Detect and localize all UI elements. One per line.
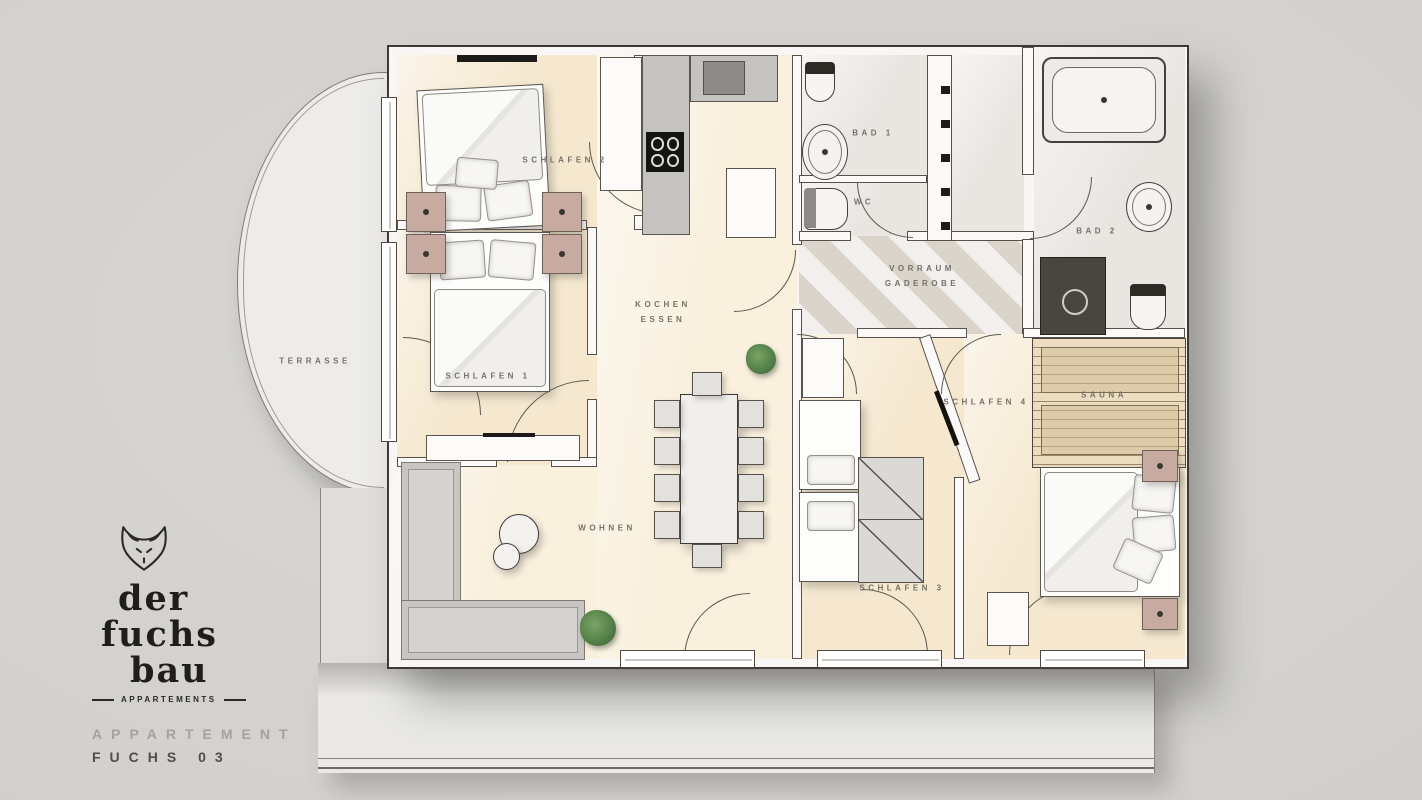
sauna-bench xyxy=(1041,405,1179,455)
dining-chair xyxy=(692,544,722,568)
kitchen-tall-unit xyxy=(726,168,776,238)
logo-tagline: APPARTEMENTS xyxy=(92,695,322,704)
tagline-dash-left xyxy=(92,699,114,701)
washing-machine xyxy=(1040,257,1106,335)
label-schlafen4: SCHLAFEN 4 xyxy=(943,395,1028,410)
dining-chair xyxy=(654,474,680,502)
coffee-table-small xyxy=(493,543,520,570)
nightstand xyxy=(1142,598,1178,630)
floorplan-scene: TERRASSE SCHLAFEN 2 SCHLAFEN 1 KOCHEN ES… xyxy=(0,0,1422,800)
tagline-dash-right xyxy=(224,699,246,701)
radiator xyxy=(941,60,950,238)
sauna-cabin xyxy=(1032,338,1186,468)
sauna-bench xyxy=(1041,347,1179,393)
label-bad1: BAD 1 xyxy=(852,126,894,141)
kitchen-island xyxy=(600,57,642,191)
dining-chair xyxy=(738,400,764,428)
label-schlafen2: SCHLAFEN 2 xyxy=(522,153,607,168)
brand-logo: der fuchs bau APPARTEMENTS APPARTEMENT F… xyxy=(92,524,322,765)
sofa-horizontal xyxy=(401,600,585,660)
apartment-name: FUCHS 03 xyxy=(92,749,322,765)
window-schlafen4 xyxy=(1040,650,1145,668)
label-wohnen: WOHNEN xyxy=(578,521,635,536)
wall-shaft xyxy=(927,55,952,241)
label-wc: WC xyxy=(854,195,874,210)
label-terrasse: TERRASSE xyxy=(279,354,351,369)
dining-chair xyxy=(654,511,680,539)
wall-bad2-left-upper xyxy=(1022,47,1034,175)
window-schlafen3 xyxy=(817,650,942,668)
wall-schlafen1-right-upper xyxy=(587,227,597,355)
apartment-outline xyxy=(387,45,1189,669)
wall-schlafen34-divider xyxy=(954,477,964,659)
nightstand xyxy=(542,234,582,274)
terrace-railing xyxy=(243,78,384,488)
desk-panel xyxy=(858,457,924,521)
cooktop xyxy=(646,132,684,172)
logo-word-bau: bau xyxy=(130,653,322,689)
nightstand xyxy=(1142,450,1178,482)
label-schlafen1: SCHLAFEN 1 xyxy=(445,369,530,384)
wall-vorraum-top-left xyxy=(799,231,851,241)
label-vorraum: VORRAUM GADEROBE xyxy=(885,261,959,291)
logo-word-fuchs: fuchs xyxy=(101,617,322,653)
plant xyxy=(580,610,616,646)
dining-chair xyxy=(738,511,764,539)
window-schlafen2 xyxy=(381,97,397,232)
room-shower-floor xyxy=(952,55,1024,236)
nightstand xyxy=(406,192,446,232)
sink-bad1 xyxy=(802,124,848,180)
sideboard-handle xyxy=(483,433,535,437)
desk-panel xyxy=(858,519,924,583)
wardrobe-schlafen4 xyxy=(987,592,1029,646)
terrace-left-curved-deck xyxy=(237,72,389,494)
fox-icon xyxy=(116,524,172,576)
plant xyxy=(746,344,776,374)
toilet-bad1 xyxy=(805,62,835,102)
wall-kitchen-right-upper xyxy=(792,55,802,245)
single-bed-schlafen3 xyxy=(799,492,861,582)
wall-schlafen3-top xyxy=(857,328,967,338)
nightstand xyxy=(542,192,582,232)
label-sauna: SAUNA xyxy=(1081,388,1127,403)
logo-word-der: der xyxy=(118,581,322,617)
window-lintel-schlafen2 xyxy=(457,55,537,62)
bed-schlafen4 xyxy=(1040,467,1180,597)
label-schlafen3: SCHLAFEN 3 xyxy=(859,581,944,596)
terrace-left-strip xyxy=(320,488,388,666)
nightstand xyxy=(406,234,446,274)
window-terrace-door xyxy=(620,650,755,668)
wardrobe-schlafen3 xyxy=(802,338,844,398)
window-schlafen1 xyxy=(381,242,397,442)
dining-chair xyxy=(692,372,722,396)
dining-chair xyxy=(654,437,680,465)
terrace-bottom-deck xyxy=(318,663,1155,773)
sideboard xyxy=(426,435,580,461)
toilet-bad2 xyxy=(1130,284,1166,330)
dining-chair xyxy=(738,474,764,502)
kitchen-counter-top xyxy=(690,55,778,102)
dining-chair xyxy=(654,400,680,428)
label-kochen-essen: KOCHEN ESSEN xyxy=(635,297,691,327)
sink-bad2 xyxy=(1126,182,1172,232)
bathtub xyxy=(1042,57,1166,143)
apartment-type-label: APPARTEMENT xyxy=(92,726,322,742)
kitchen-sink xyxy=(703,61,745,95)
single-bed-schlafen3 xyxy=(799,400,861,490)
toilet-wc xyxy=(804,188,848,230)
wall-bad2-left-lower xyxy=(1022,239,1034,334)
label-bad2: BAD 2 xyxy=(1076,224,1118,239)
terrace-railing-bottom xyxy=(318,758,1154,769)
dining-chair xyxy=(738,437,764,465)
dining-table xyxy=(680,394,738,544)
